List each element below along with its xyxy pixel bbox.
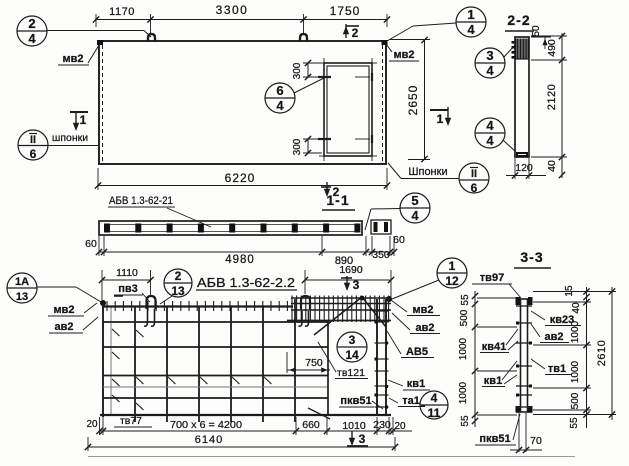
svg-text:1010: 1010 (342, 420, 366, 432)
svg-text:1110: 1110 (116, 267, 138, 279)
svg-text:1690: 1690 (339, 264, 363, 276)
svg-text:500: 500 (570, 392, 581, 409)
svg-text:20: 20 (394, 421, 406, 432)
svg-text:1A: 1A (15, 276, 29, 288)
svg-text:3: 3 (353, 278, 360, 292)
svg-text:60: 60 (85, 238, 97, 250)
svg-text:2120: 2120 (546, 84, 558, 110)
svg-text:ав2: ав2 (416, 322, 435, 334)
svg-text:490: 490 (546, 39, 558, 57)
svg-text:350: 350 (372, 249, 390, 261)
svg-text:6: 6 (276, 83, 283, 98)
svg-text:1000: 1000 (458, 381, 469, 404)
svg-text:Шпонки: Шпонки (408, 166, 447, 178)
svg-text:12: 12 (445, 274, 459, 288)
svg-text:40: 40 (571, 302, 582, 314)
svg-text:15: 15 (564, 285, 575, 297)
svg-text:120: 120 (515, 162, 533, 174)
svg-text:70: 70 (530, 435, 542, 447)
svg-text:4: 4 (28, 31, 36, 46)
svg-text:АВ5: АВ5 (406, 346, 428, 358)
svg-text:тв77: тв77 (120, 415, 142, 427)
svg-text:700 x 6 = 4200: 700 x 6 = 4200 (170, 419, 242, 431)
svg-text:60: 60 (393, 234, 405, 246)
svg-text:2610: 2610 (596, 340, 608, 366)
svg-text:шпонки: шпонки (52, 132, 88, 144)
svg-text:кв1: кв1 (484, 375, 502, 387)
svg-text:13: 13 (171, 284, 185, 298)
svg-text:мв2: мв2 (393, 49, 414, 61)
svg-text:II: II (471, 168, 477, 180)
svg-text:3: 3 (359, 432, 366, 446)
svg-text:пв3: пв3 (118, 283, 138, 295)
svg-text:3300: 3300 (216, 3, 249, 17)
svg-text:2-2: 2-2 (507, 12, 530, 28)
svg-text:АБВ 1.3-62-2.2: АБВ 1.3-62-2.2 (197, 275, 295, 290)
svg-text:55: 55 (460, 415, 471, 427)
svg-text:мв2: мв2 (412, 304, 433, 316)
svg-text:4980: 4980 (225, 254, 255, 266)
svg-text:230: 230 (373, 419, 391, 431)
svg-text:тв97: тв97 (480, 272, 504, 284)
svg-text:14: 14 (345, 348, 359, 362)
svg-text:кв23: кв23 (550, 314, 575, 326)
svg-text:1750: 1750 (330, 4, 361, 18)
svg-text:1: 1 (449, 259, 456, 273)
svg-text:1170: 1170 (109, 6, 135, 18)
svg-text:1: 1 (80, 113, 87, 127)
svg-text:тв121: тв121 (337, 367, 365, 379)
svg-text:11: 11 (428, 406, 441, 420)
svg-text:20: 20 (86, 419, 98, 430)
svg-text:1: 1 (467, 7, 474, 22)
svg-text:мв2: мв2 (53, 304, 74, 316)
svg-text:тв1: тв1 (548, 363, 566, 375)
svg-text:500: 500 (459, 309, 470, 326)
svg-text:6140: 6140 (195, 434, 223, 446)
svg-text:2: 2 (28, 16, 35, 31)
svg-text:мв2: мв2 (62, 53, 83, 65)
svg-text:300: 300 (292, 62, 303, 79)
svg-text:4: 4 (486, 118, 494, 133)
svg-text:ав2: ав2 (545, 331, 564, 343)
svg-text:6: 6 (471, 181, 478, 195)
svg-text:1-1: 1-1 (326, 192, 349, 208)
svg-text:4: 4 (276, 98, 284, 113)
svg-text:1000: 1000 (570, 360, 581, 383)
svg-text:40: 40 (546, 160, 558, 172)
svg-text:4: 4 (431, 391, 438, 405)
svg-text:АБВ 1.3-62-21: АБВ 1.3-62-21 (109, 195, 173, 207)
svg-text:та1: та1 (402, 395, 420, 407)
svg-text:13: 13 (16, 291, 28, 303)
svg-text:II: II (30, 134, 36, 146)
svg-text:ав2: ав2 (55, 321, 74, 333)
svg-text:4: 4 (411, 208, 419, 223)
svg-text:2: 2 (175, 269, 182, 283)
svg-text:4: 4 (486, 63, 494, 78)
svg-text:6220: 6220 (225, 171, 256, 185)
svg-text:55: 55 (460, 294, 471, 306)
svg-text:660: 660 (302, 419, 320, 431)
svg-text:3: 3 (486, 48, 493, 63)
svg-text:2650: 2650 (406, 85, 420, 116)
svg-text:3-3: 3-3 (520, 249, 543, 265)
svg-text:5: 5 (411, 193, 418, 208)
svg-text:1: 1 (437, 112, 444, 126)
svg-text:2: 2 (352, 26, 359, 40)
svg-text:кв41: кв41 (482, 341, 507, 353)
svg-text:4: 4 (486, 133, 494, 148)
svg-text:6: 6 (30, 147, 37, 161)
svg-text:750: 750 (305, 357, 323, 369)
svg-text:55: 55 (569, 417, 580, 429)
svg-text:пкв51: пкв51 (340, 395, 371, 407)
svg-text:1000: 1000 (458, 337, 469, 360)
svg-text:4: 4 (467, 22, 475, 37)
svg-text:300: 300 (292, 138, 303, 155)
svg-text:пкв51: пкв51 (479, 433, 510, 445)
svg-text:кв1: кв1 (407, 378, 425, 390)
svg-text:3: 3 (349, 333, 356, 347)
svg-text:50: 50 (531, 25, 542, 37)
